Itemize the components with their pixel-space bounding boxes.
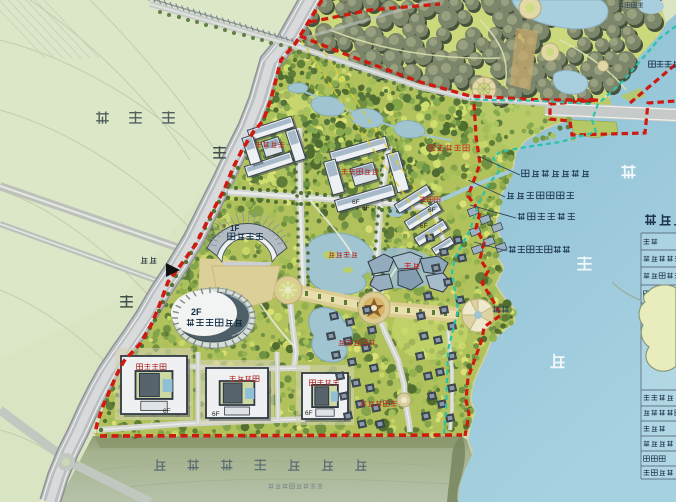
svg-text:6F: 6F: [212, 411, 220, 418]
svg-text:6F: 6F: [362, 205, 370, 212]
svg-text:6F: 6F: [352, 199, 360, 206]
svg-text:6F: 6F: [420, 223, 428, 230]
svg-text:6F: 6F: [163, 408, 171, 415]
svg-text:6F: 6F: [428, 207, 436, 214]
svg-text:6F: 6F: [305, 410, 313, 417]
svg-text:1F: 1F: [230, 224, 239, 233]
svg-text:2F: 2F: [191, 307, 202, 317]
